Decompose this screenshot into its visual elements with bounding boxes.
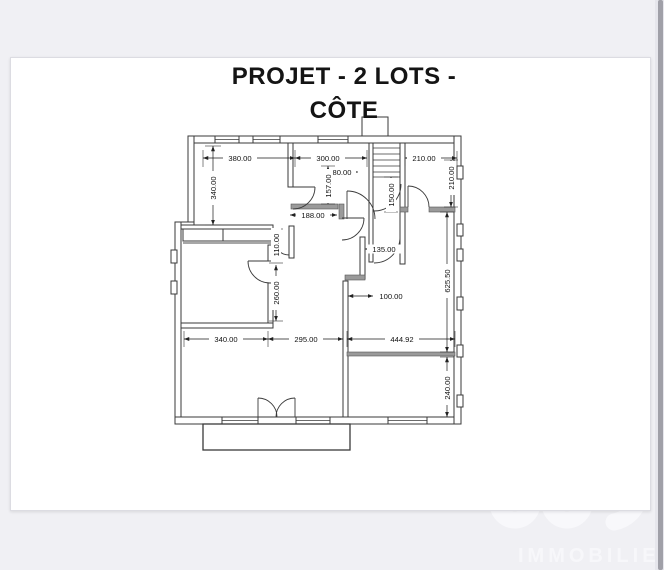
plan-title-line2: CÔTE	[24, 94, 664, 128]
dimension-label: 157.00	[324, 174, 333, 197]
dimension-label: 380.00	[228, 154, 251, 163]
screenshot-canvas: IMMOBILIER PROJET - 2 LOTS - CÔTE	[0, 0, 664, 570]
outer-walls	[175, 117, 461, 424]
dimension-label: 80.00	[332, 168, 351, 177]
staircase	[373, 148, 400, 177]
dimension-label: 188.00	[301, 211, 324, 220]
porch-outline	[203, 424, 350, 450]
plan-title-line1: PROJET - 2 LOTS -	[24, 60, 664, 94]
scrollbar-track[interactable]	[655, 0, 664, 570]
plan-title: PROJET - 2 LOTS - CÔTE	[24, 60, 664, 128]
dimension-label: 210.00	[447, 166, 456, 189]
dimension-label: 150.00	[387, 183, 396, 206]
scrollbar-thumb[interactable]	[658, 0, 663, 570]
dimension-label: 240.00	[443, 376, 452, 399]
dimension-label: 340.00	[214, 335, 237, 344]
dimension-label: 295.00	[294, 335, 317, 344]
dimensions: 380.00 300.00 210.00 80.00 188.00 135.00…	[184, 146, 457, 417]
dimension-label: 100.00	[379, 292, 402, 301]
dimension-label: 625.50	[443, 269, 452, 292]
interior-walls	[181, 143, 455, 417]
dimension-label: 260.00	[272, 281, 281, 304]
dimension-label: 210.00	[412, 154, 435, 163]
dimension-label: 340.00	[209, 176, 218, 199]
dimension-label: 135.00	[372, 245, 395, 254]
dimension-label: 110.00	[272, 234, 281, 257]
dimension-label: 300.00	[316, 154, 339, 163]
dimension-label: 444.92	[390, 335, 413, 344]
dimension-ticks	[184, 146, 458, 417]
